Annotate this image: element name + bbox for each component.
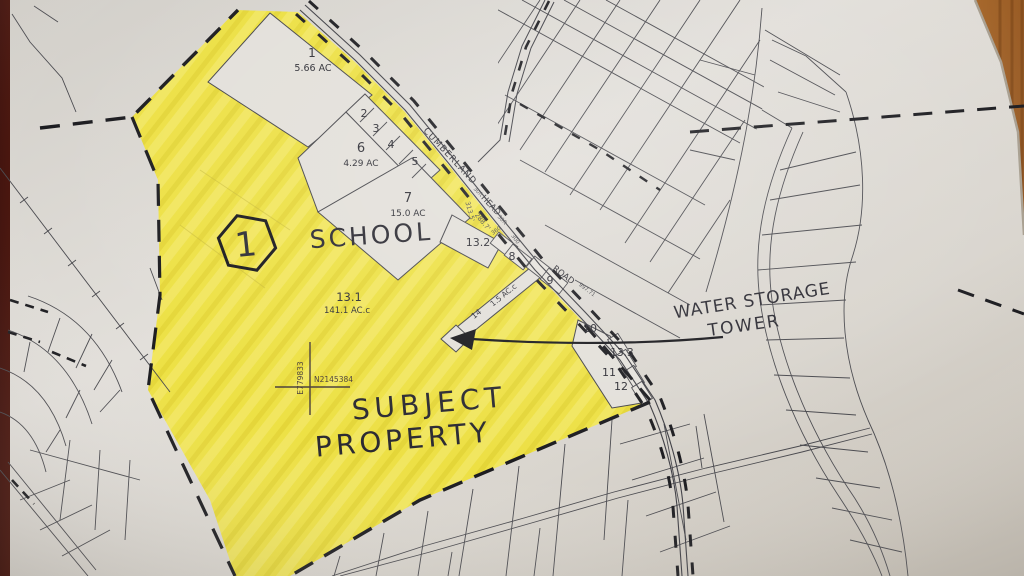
plat-map-svg: E779833 N2145384 1 1 5.66 AC 2 3 4 5 6 4…	[0, 0, 1024, 576]
photo-vignette	[0, 0, 1024, 576]
photo-of-plat-map: E779833 N2145384 1 1 5.66 AC 2 3 4 5 6 4…	[0, 0, 1024, 576]
